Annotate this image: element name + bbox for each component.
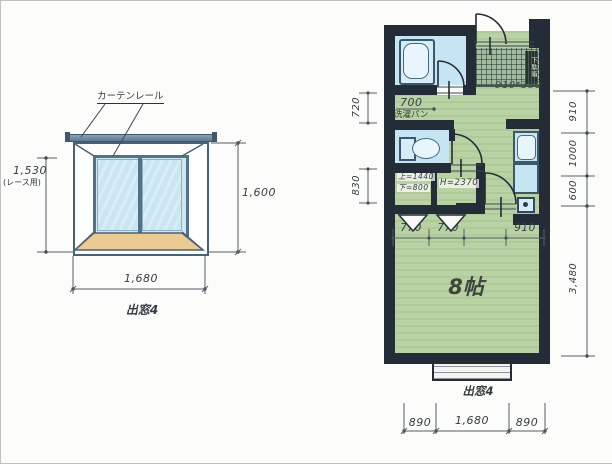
bay-window-sill — [75, 233, 203, 250]
right-dim-chain — [553, 89, 595, 357]
closet-door-marks — [399, 215, 465, 231]
floorplan-sheet: カーテンレール 1,530 (レース用) 1,600 1,680 出窓4 下駄箱… — [0, 0, 612, 464]
window-dimension-lines — [37, 140, 246, 294]
room-door — [485, 173, 516, 217]
bathroom-door — [437, 61, 464, 99]
left-dim-chain — [359, 91, 377, 204]
curtain-label-leaders — [81, 104, 143, 156]
bottom-dim-chain — [401, 403, 548, 434]
toilet-door — [451, 134, 483, 177]
interior-dim-chain — [391, 229, 545, 246]
washing-pan-dim-line — [396, 107, 436, 110]
linework-layer — [1, 1, 612, 463]
entrance-door — [474, 14, 534, 55]
